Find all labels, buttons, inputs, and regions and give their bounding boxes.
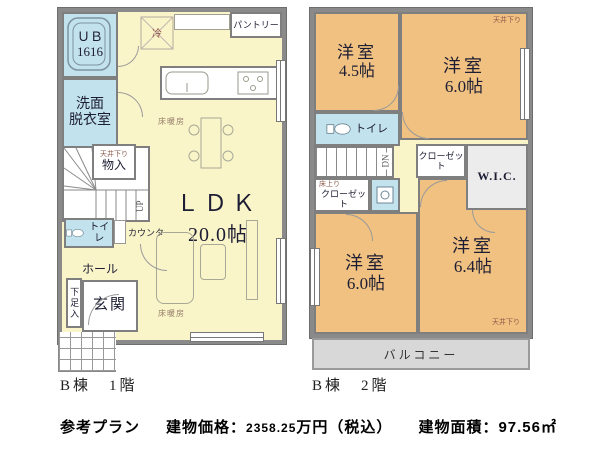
room-label-pantry: パントリー <box>233 20 278 30</box>
floorplan-2f: 洋室 4.5帖 天井下り 洋室 6.0帖 トイレ DN 床上り クローゼット <box>310 8 532 338</box>
ldk-name: ＬＤＫ <box>154 184 282 218</box>
room-unit-bath: ＵＢ 1616 <box>62 12 118 78</box>
washbasin-nook <box>370 178 400 212</box>
shoe-cabinet-label: 下足入 <box>69 287 79 320</box>
coffee-table-icon <box>200 244 226 280</box>
footer-price-suffix: 万円（税込） <box>296 419 392 436</box>
washbasin-icon <box>376 186 394 204</box>
room-2f-tl: 洋室 4.5帖 <box>314 12 400 112</box>
toilet-icon-2f <box>326 121 352 137</box>
footer-price-value: 2358.25 <box>246 421 296 435</box>
room-2f-tl-name: 洋室 <box>337 43 377 63</box>
balcony-label: バルコニー <box>384 346 459 363</box>
room-pantry: パントリー <box>230 12 282 38</box>
door-arc-bath <box>118 46 139 67</box>
closet-center-label: クローゼット <box>418 151 464 172</box>
window-2f-left <box>310 248 320 306</box>
fridge-icon: 冷 <box>140 16 174 50</box>
room-2f-br-name: 洋室 <box>452 236 494 257</box>
room-label-ub: ＵＢ <box>77 30 103 45</box>
room-washroom: 洗面 脱衣室 <box>62 78 118 148</box>
closet-stepup-label: クローゼット <box>319 189 368 210</box>
hall-label: ホール <box>82 260 118 277</box>
floorplan-1f: ＵＢ 1616 洗面 脱衣室 UP 天井下り 物入 <box>58 8 286 344</box>
floor-heating-label-1: 床暖房 <box>158 116 185 127</box>
room-entrance: 玄関 <box>82 280 138 332</box>
tv-board-icon <box>246 220 258 300</box>
footer-line: 参考プラン建物価格：2358.25万円（税込）建物面積：97.56㎡ <box>60 416 557 437</box>
floorplan-sheet: ＵＢ 1616 洗面 脱衣室 UP 天井下り 物入 <box>0 0 600 449</box>
room-toilet-1f: トイレ <box>64 218 114 248</box>
room-2f-bl-name: 洋室 <box>345 253 387 274</box>
ceiling-drop-note-2f-tr: 天井下り <box>493 17 521 25</box>
floor1-caption: B棟 1階 <box>60 374 138 395</box>
room-label-ub-size: 1616 <box>77 45 103 60</box>
stepup-note: 床上り <box>319 181 340 189</box>
kitchen-cabinet-shape <box>174 14 230 30</box>
room-label-washroom-2: 脱衣室 <box>69 113 111 129</box>
room-2f-tr-name: 洋室 <box>443 56 485 77</box>
walk-in-closet: W.I.C. <box>466 144 528 210</box>
footer-price-label: 建物価格： <box>166 419 246 436</box>
room-label-entrance: 玄関 <box>93 297 127 314</box>
kitchen-counter <box>160 66 278 100</box>
room-storage: 天井下り 物入 <box>92 144 136 180</box>
shoe-cabinet: 下足入 <box>66 278 82 328</box>
door-arc-washroom <box>118 92 143 117</box>
room-2f-bl: 洋室 6.0帖 <box>314 212 418 334</box>
footer-area-value: 97.56㎡ <box>498 419 557 436</box>
room-label-toilet-1f: トイレ <box>87 222 112 245</box>
room-toilet-2f: トイレ <box>314 112 400 146</box>
room-2f-bl-size: 6.0帖 <box>347 274 385 294</box>
room-label-storage: 物入 <box>102 159 126 173</box>
toilet-icon-1f <box>66 226 85 240</box>
up-label: UP <box>135 200 145 212</box>
stairs-down-2f: DN <box>314 146 394 178</box>
porch-tiles <box>58 332 116 372</box>
window-2f-right <box>520 48 530 120</box>
room-label-toilet-2f: トイレ <box>355 123 388 136</box>
balcony: バルコニー <box>312 338 530 370</box>
room-2f-br-size: 6.4帖 <box>454 257 492 277</box>
window-1f-bottom <box>190 332 264 342</box>
sink-stove-icon <box>162 68 276 98</box>
footer-area-label: 建物面積： <box>418 419 498 436</box>
floor-heating-label-2: 床暖房 <box>158 308 185 319</box>
fridge-label: 冷 <box>152 27 162 40</box>
wic-label: W.I.C. <box>477 170 516 184</box>
closet-center: クローゼット <box>416 144 466 178</box>
window-1f-right-top <box>276 60 286 122</box>
closet-stepup: 床上り クローゼット <box>314 178 370 212</box>
sofa-icon <box>156 232 194 304</box>
window-1f-right-bottom <box>276 238 286 304</box>
room-label-washroom-1: 洗面 <box>76 97 104 113</box>
dining-set-icon <box>188 112 234 174</box>
counter-shape <box>114 220 126 244</box>
floor2-caption: B棟 2階 <box>312 374 390 395</box>
dn-label: DN <box>381 153 391 170</box>
room-2f-tr: 天井下り 洋室 6.0帖 <box>400 12 528 140</box>
room-2f-tr-size: 6.0帖 <box>445 77 483 97</box>
room-2f-tl-size: 4.5帖 <box>339 63 375 81</box>
footer-plan: 参考プラン <box>60 419 140 436</box>
ceiling-drop-note-2f-br: 天井下り <box>492 319 520 327</box>
